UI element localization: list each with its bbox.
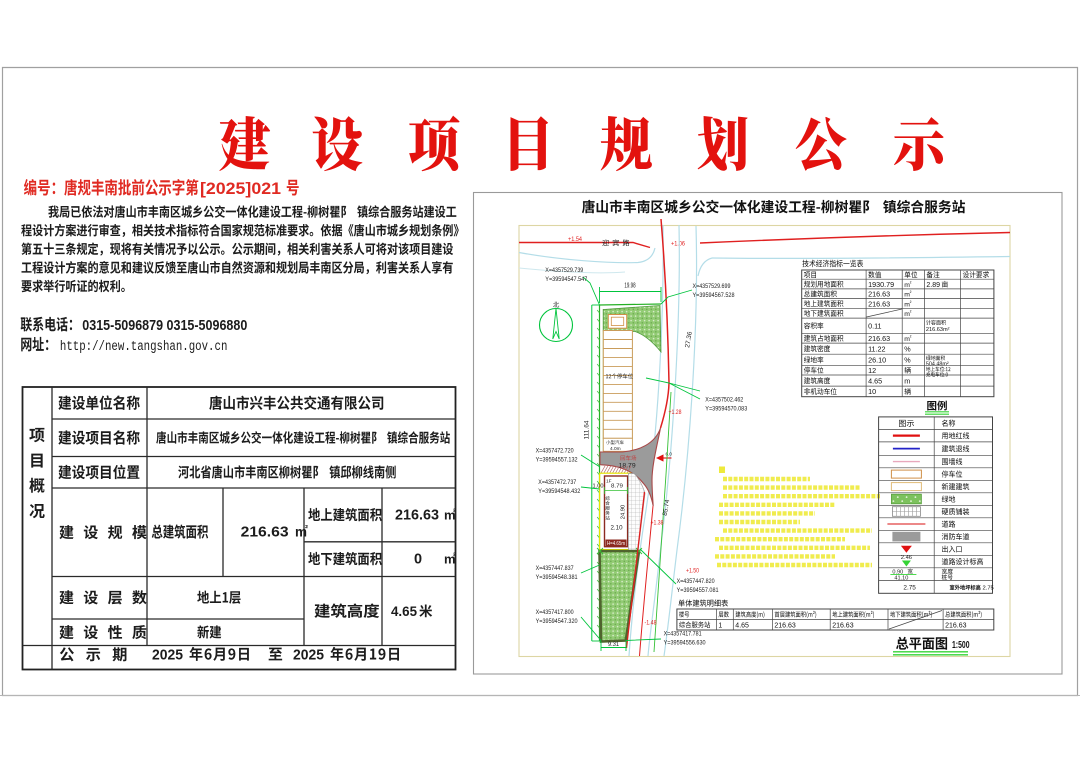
svg-text:216.63: 216.63	[774, 622, 796, 629]
svg-text:2.10: 2.10	[611, 525, 624, 532]
svg-text:0.11: 0.11	[868, 322, 881, 331]
svg-text:²: ²	[305, 523, 308, 533]
svg-text:2.46: 2.46	[901, 555, 912, 561]
svg-text:216.63: 216.63	[868, 334, 890, 343]
svg-text:0315-5096879 0315-5096880: 0315-5096879 0315-5096880	[82, 318, 247, 334]
svg-text:X=4357472.720: X=4357472.720	[536, 448, 574, 455]
svg-text:216.63: 216.63	[945, 622, 967, 629]
svg-text:216.63: 216.63	[868, 290, 890, 299]
svg-text:X=4357447.837: X=4357447.837	[536, 565, 574, 572]
svg-text:Y=39594547.547: Y=39594547.547	[545, 276, 587, 283]
svg-text:[2025]021: [2025]021	[200, 179, 281, 198]
svg-text:+1.06: +1.06	[671, 241, 685, 248]
svg-text:Y=39594556.630: Y=39594556.630	[664, 639, 706, 646]
svg-text:+1.50: +1.50	[686, 568, 699, 575]
svg-text:Y=39594570.083: Y=39594570.083	[705, 405, 747, 412]
svg-text:X=4357417.781: X=4357417.781	[664, 631, 702, 638]
svg-text:http://new.tangshan.gov.cn: http://new.tangshan.gov.cn	[60, 340, 228, 355]
svg-text:216.63: 216.63	[395, 508, 439, 524]
svg-text:X=4357502.462: X=4357502.462	[705, 397, 743, 404]
svg-text:2025: 2025	[152, 648, 183, 664]
svg-text:Y=39594567.528: Y=39594567.528	[693, 292, 735, 299]
svg-text:Y=39594548.432: Y=39594548.432	[538, 488, 580, 495]
svg-text:26.10: 26.10	[868, 356, 886, 365]
svg-text:²: ²	[453, 551, 456, 561]
svg-text:1: 1	[718, 622, 722, 629]
svg-text:X=4357447.820: X=4357447.820	[677, 578, 715, 585]
svg-text:216.63: 216.63	[241, 525, 289, 541]
svg-text:²: ²	[453, 507, 456, 517]
svg-text:X=4357529.699: X=4357529.699	[693, 283, 731, 290]
svg-text:Y=39594557.081: Y=39594557.081	[677, 587, 719, 594]
svg-text:216.63: 216.63	[868, 299, 890, 308]
svg-text:2.75: 2.75	[983, 586, 994, 592]
svg-text:2.75: 2.75	[903, 585, 916, 592]
svg-text:41.10: 41.10	[894, 575, 908, 581]
svg-text:2.89: 2.89	[926, 282, 940, 289]
svg-text:X=4357529.739: X=4357529.739	[545, 267, 583, 274]
svg-text:10: 10	[868, 387, 876, 396]
svg-text:4.65: 4.65	[868, 376, 882, 385]
svg-text:H=4.65m: H=4.65m	[607, 541, 625, 547]
svg-text:8.79: 8.79	[611, 484, 623, 490]
svg-text:12: 12	[868, 366, 876, 375]
svg-text:9.31: 9.31	[608, 641, 619, 648]
svg-text:+1.28: +1.28	[669, 409, 682, 416]
svg-text:-1.48: -1.48	[645, 620, 657, 627]
svg-text:Y=39594557.132: Y=39594557.132	[536, 456, 578, 463]
svg-text:11.22: 11.22	[868, 344, 885, 353]
svg-text:504.48m²: 504.48m²	[926, 361, 949, 367]
svg-text:6.0: 6.0	[666, 452, 673, 457]
svg-text:24.90: 24.90	[621, 505, 627, 520]
svg-text:4.65: 4.65	[391, 604, 417, 619]
svg-text:X=4357417.800: X=4357417.800	[536, 609, 574, 616]
svg-text:19.98: 19.98	[624, 283, 635, 290]
svg-text:2025: 2025	[293, 648, 324, 664]
svg-text:4.0m: 4.0m	[610, 446, 621, 452]
svg-text:Y=39594547.320: Y=39594547.320	[536, 618, 578, 625]
svg-text:1:500: 1:500	[952, 639, 970, 651]
svg-text:216.63m²: 216.63m²	[926, 327, 950, 333]
svg-text:0: 0	[414, 552, 422, 568]
svg-text:216.63: 216.63	[832, 622, 854, 629]
svg-text:4.65: 4.65	[735, 622, 749, 629]
svg-text:1930.79: 1930.79	[868, 280, 894, 289]
svg-text:Y=39594548.381: Y=39594548.381	[536, 574, 578, 581]
svg-text:%: %	[904, 356, 911, 365]
svg-text:X=4357472.737: X=4357472.737	[538, 479, 576, 486]
svg-text:111.64: 111.64	[584, 420, 591, 439]
svg-text:+1.38: +1.38	[651, 520, 664, 527]
svg-text:m: m	[904, 376, 910, 385]
svg-text:%: %	[904, 344, 911, 353]
svg-text:+1.54: +1.54	[568, 236, 582, 243]
